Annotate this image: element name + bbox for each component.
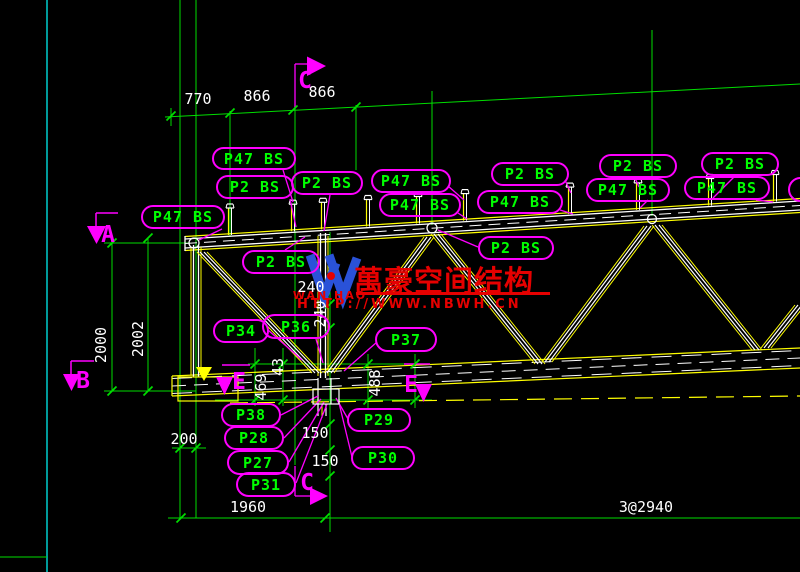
diagonal-member — [764, 305, 798, 348]
top-chord-edge — [185, 199, 800, 237]
marker-c-bottom-label: C — [300, 470, 314, 496]
dim-469: 469 — [252, 373, 270, 400]
diagonal-member — [662, 225, 762, 350]
dim-770: 770 — [184, 90, 211, 108]
leader-line — [458, 213, 467, 219]
leader-line — [283, 170, 293, 202]
dim-43: 43 — [269, 358, 287, 376]
watermark-url: HTTP://WWW.NBWH.CN — [297, 297, 522, 312]
top-chord-edge — [185, 201, 800, 239]
diagonal-member — [549, 226, 651, 362]
diagonal-member — [542, 226, 644, 362]
leader-line — [316, 339, 323, 363]
diagonal-member — [652, 225, 752, 350]
watermark-underline — [356, 292, 550, 295]
leader-line — [339, 403, 352, 457]
dim-200: 200 — [170, 430, 197, 448]
top-chord-edge — [185, 213, 800, 251]
marker-b-label: B — [76, 368, 90, 394]
dim-866b: 866 — [308, 83, 335, 101]
dim-2000: 2000 — [92, 327, 110, 363]
diagonal-member — [545, 226, 647, 362]
leader-line — [640, 200, 648, 208]
dim-488: 488 — [366, 369, 384, 396]
leader-line — [713, 176, 735, 198]
wanhao-logo-dot — [327, 272, 335, 280]
diagonal-member — [768, 305, 800, 348]
marker-e-right-label: E — [404, 372, 418, 398]
diagonal-member — [204, 252, 319, 373]
dim-150a: 150 — [301, 424, 328, 442]
diagonal-member — [200, 252, 315, 373]
marker-e-left-arrow — [216, 377, 233, 395]
dim-150b: 150 — [311, 452, 338, 470]
marker-a-label: A — [101, 222, 115, 248]
dim-866a: 866 — [243, 87, 270, 105]
dim-2002: 2002 — [129, 321, 147, 357]
dim-1960: 1960 — [230, 498, 266, 516]
dim-240-h: 240 — [297, 278, 324, 296]
diagonal-member — [655, 225, 755, 350]
top-chord-edge — [185, 210, 800, 248]
diagonal-member — [659, 225, 759, 350]
diagonal-member — [552, 226, 654, 362]
cad-canvas: WAN HAO 770 866 866 2000 2002 240 240 43… — [0, 0, 800, 572]
marker-e-left-label: E — [232, 369, 246, 395]
diagonal-member — [207, 252, 322, 373]
marker-c-top-label: C — [298, 68, 312, 94]
dim-span: 3@2940 — [619, 498, 673, 516]
diagonal-member — [761, 305, 795, 348]
top-chord-center — [185, 206, 800, 244]
